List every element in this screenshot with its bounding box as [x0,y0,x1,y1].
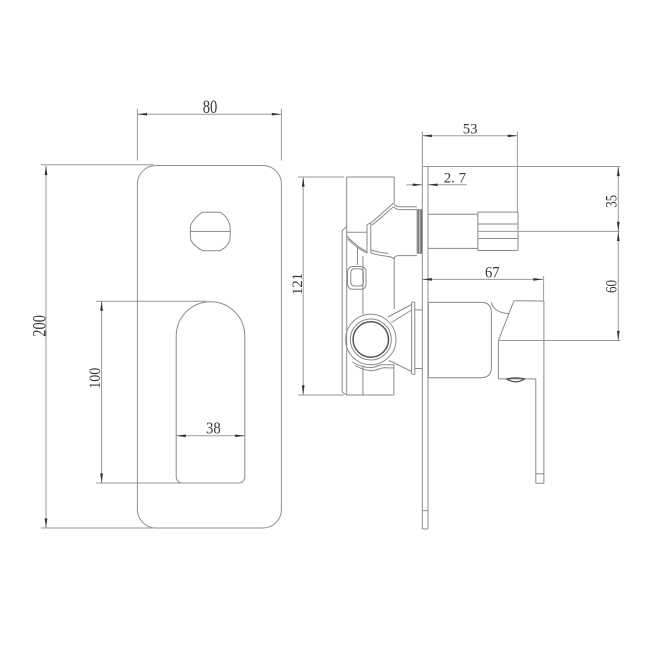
svg-text:200: 200 [29,315,50,337]
svg-text:121: 121 [290,273,306,295]
svg-text:38: 38 [206,419,221,438]
svg-text:35: 35 [602,195,621,208]
svg-text:100: 100 [87,368,104,389]
svg-text:80: 80 [203,97,218,118]
svg-text:60: 60 [601,280,620,293]
svg-text:2. 7: 2. 7 [444,170,467,186]
svg-text:67: 67 [485,264,500,281]
svg-text:53: 53 [463,122,478,138]
